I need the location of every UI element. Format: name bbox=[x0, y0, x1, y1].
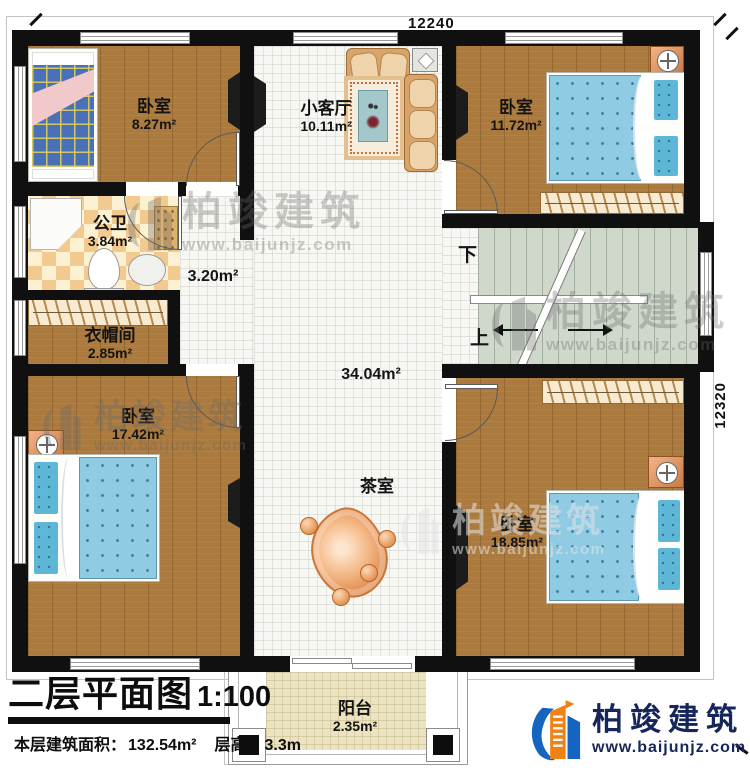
stairs-down-label: 下 bbox=[458, 240, 477, 267]
bed-mattress bbox=[549, 75, 641, 181]
room-name: 衣帽间 bbox=[85, 327, 136, 345]
tea-stool bbox=[360, 564, 378, 582]
break-mark-icon bbox=[713, 13, 726, 26]
sliding-door-panel bbox=[352, 663, 412, 669]
window-left-4 bbox=[14, 436, 26, 564]
balcony-pillar bbox=[426, 728, 460, 762]
title-underline bbox=[8, 717, 230, 724]
room-area: 3.20m² bbox=[188, 268, 239, 286]
wall-interior-v3 bbox=[240, 364, 254, 656]
door-leaf bbox=[236, 132, 240, 186]
room-name: 公卫 bbox=[88, 215, 132, 233]
wall-cloakroom-right bbox=[168, 298, 180, 364]
stair-arrow-down bbox=[502, 329, 538, 331]
wall-bedroomTR-bottom bbox=[442, 214, 700, 228]
window-top-1 bbox=[80, 32, 190, 44]
room-area: 34.04m² bbox=[341, 366, 401, 384]
plan-info: 本层建筑面积：132.54m²层高：3.3m bbox=[14, 731, 303, 755]
nightstand bbox=[650, 46, 684, 74]
stair-arrow-up bbox=[568, 329, 604, 331]
tv-bedroom-bottom-right bbox=[456, 505, 468, 590]
room-name: 阳台 bbox=[333, 700, 377, 718]
bed-pillow bbox=[33, 461, 59, 515]
bed-top-left bbox=[28, 48, 98, 182]
label-bathroom: 公卫 3.84m² bbox=[88, 215, 132, 249]
floor-plan: 卧室 8.27m² 小客厅 10.11m² 卧室 11.72m² 公卫 3.84… bbox=[0, 0, 750, 773]
tv-bedroom-bottom-left bbox=[228, 478, 240, 528]
tea-stool bbox=[300, 517, 318, 535]
window-left-3 bbox=[14, 300, 26, 356]
label-corridor: 3.20m² bbox=[188, 268, 239, 286]
door-leaf bbox=[178, 196, 182, 250]
wardrobe-bedroom-top-right bbox=[540, 192, 684, 214]
bed-pillow bbox=[33, 521, 59, 575]
window-left-1 bbox=[14, 66, 26, 162]
room-area: 11.72m² bbox=[490, 117, 541, 133]
lamp-icon bbox=[657, 50, 679, 72]
title-block: 二层平面图 1:100 bbox=[8, 676, 271, 712]
stair-handrail bbox=[470, 295, 648, 304]
dimension-right: 12320 bbox=[712, 382, 729, 429]
logo-building-icon bbox=[527, 698, 583, 762]
tv-bedroom-top-right bbox=[456, 85, 468, 140]
wall-interior-h1c bbox=[238, 182, 254, 196]
tv-living-room bbox=[254, 76, 266, 132]
window-bottom-1 bbox=[70, 658, 200, 670]
bed-mattress bbox=[549, 493, 639, 601]
wall-interior-v1 bbox=[240, 30, 254, 240]
wall-stairs-bottom bbox=[442, 364, 700, 378]
room-name: 卧室 bbox=[490, 99, 541, 117]
room-area: 3.84m² bbox=[88, 233, 132, 249]
washbasin bbox=[128, 254, 166, 286]
bed-pillow bbox=[653, 79, 679, 121]
sofa-side-row bbox=[404, 74, 438, 172]
cloakroom-hanger-rack bbox=[28, 298, 168, 326]
bed-pillow bbox=[653, 135, 679, 177]
label-tearoom: 茶室 bbox=[360, 478, 394, 496]
room-area: 10.11m² bbox=[300, 118, 351, 134]
label-living: 小客厅 10.11m² bbox=[300, 100, 351, 134]
wardrobe-bedroom-bottom-right bbox=[542, 380, 684, 404]
label-bedroom-top-left: 卧室 8.27m² bbox=[132, 98, 176, 132]
wall-right-lower bbox=[684, 364, 700, 672]
window-bottom-2 bbox=[490, 658, 635, 670]
room-area: 2.35m² bbox=[333, 718, 377, 734]
room-area: 8.27m² bbox=[132, 116, 176, 132]
room-area: 17.42m² bbox=[112, 426, 164, 442]
brand-name: 柏竣建筑 bbox=[592, 703, 746, 737]
wall-interior-v4 bbox=[442, 30, 456, 160]
door-leaf bbox=[444, 210, 498, 214]
wall-bath-bottom bbox=[12, 290, 180, 300]
side-table bbox=[412, 48, 438, 72]
bed-pillow bbox=[657, 499, 681, 543]
window-left-2 bbox=[14, 206, 26, 278]
plan-scale: 1:100 bbox=[197, 683, 271, 712]
break-mark-icon bbox=[725, 27, 738, 40]
bed-mattress bbox=[79, 457, 157, 579]
dimension-top: 12240 bbox=[408, 15, 455, 32]
label-bedroom-bottom-right: 卧室 18.85m² bbox=[491, 516, 543, 550]
door-leaf bbox=[445, 384, 498, 389]
stair-arrow-left-icon bbox=[493, 324, 503, 336]
nightstand bbox=[648, 456, 684, 488]
room-area: 18.85m² bbox=[491, 534, 543, 550]
floor-height-value: 3.3m bbox=[265, 737, 301, 754]
sliding-door-panel bbox=[292, 658, 352, 664]
area-label: 本层建筑面积： bbox=[14, 737, 126, 754]
window-top-3 bbox=[505, 32, 623, 44]
label-bedroom-bottom-left: 卧室 17.42m² bbox=[112, 408, 164, 442]
label-cloakroom: 衣帽间 2.85m² bbox=[85, 327, 136, 361]
stair-arrow-right-icon bbox=[603, 324, 613, 336]
window-stairs-right bbox=[700, 252, 712, 336]
wall-interior-h3a bbox=[12, 364, 186, 376]
plan-title: 二层平面图 bbox=[8, 676, 193, 712]
floor-height-label: 层高： bbox=[215, 737, 263, 754]
wall-interior-v5 bbox=[442, 442, 456, 656]
area-value: 132.54m² bbox=[128, 737, 197, 754]
tv-bedroom-top-left bbox=[228, 72, 240, 130]
company-logo: 柏竣建筑 www.baijunjz.com bbox=[527, 698, 746, 762]
coffee-table bbox=[358, 90, 388, 142]
bed-top-right bbox=[546, 72, 686, 184]
lamp-icon bbox=[656, 462, 678, 484]
label-hall: 34.04m² bbox=[341, 366, 401, 384]
bed-quilt-fold bbox=[633, 493, 655, 601]
lamp-icon bbox=[36, 434, 58, 456]
window-top-2 bbox=[293, 32, 398, 44]
room-name: 茶室 bbox=[360, 478, 394, 496]
stairs-up-label: 上 bbox=[470, 323, 489, 350]
room-name: 小客厅 bbox=[300, 100, 351, 118]
tea-stool bbox=[378, 530, 396, 548]
label-bedroom-top-right: 卧室 11.72m² bbox=[490, 99, 541, 133]
bed-quilt-fold bbox=[633, 75, 655, 181]
room-name: 卧室 bbox=[112, 408, 164, 426]
door-leaf bbox=[236, 376, 240, 428]
bed-bottom-right bbox=[546, 490, 686, 604]
bed-pillow bbox=[657, 547, 681, 591]
toilet bbox=[88, 248, 120, 290]
bed-bottom-left bbox=[28, 454, 160, 582]
label-balcony: 阳台 2.35m² bbox=[333, 700, 377, 734]
room-name: 卧室 bbox=[132, 98, 176, 116]
wall-interior-h1b bbox=[178, 182, 186, 196]
bed-quilt-fold bbox=[61, 457, 79, 579]
wall-interior-h1a bbox=[12, 182, 126, 196]
room-name: 卧室 bbox=[491, 516, 543, 534]
bed-footboard bbox=[32, 169, 94, 179]
wall-right-upper bbox=[684, 30, 700, 228]
brand-website: www.baijunjz.com bbox=[592, 739, 746, 757]
room-area: 2.85m² bbox=[85, 345, 136, 361]
tea-stool bbox=[332, 588, 350, 606]
